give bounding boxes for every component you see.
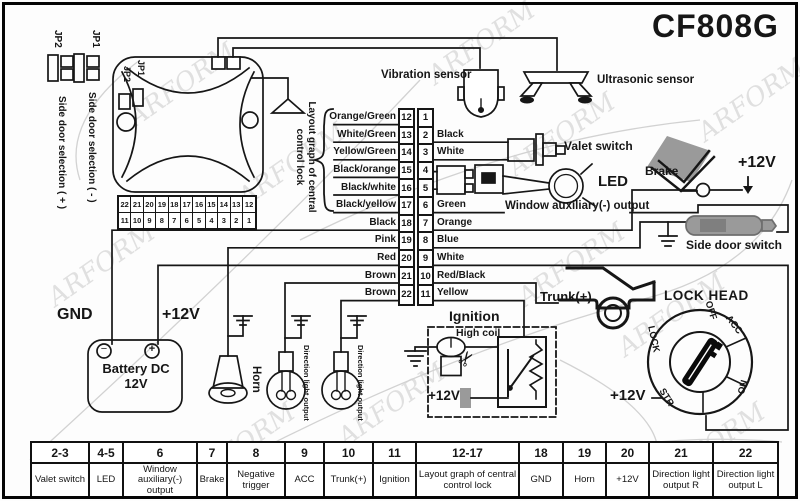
wire-label-left: Black/white — [341, 183, 396, 194]
wiring-diagram-page: ARFORMARFORMARFORMARFORMARFORMARFORMARFO… — [0, 0, 800, 501]
table-pin-label: Horn — [564, 464, 605, 497]
table-pin-label: GND — [520, 464, 562, 497]
strip-pin-number: 21 — [131, 197, 143, 213]
table-column: 20+12V — [607, 443, 650, 497]
ultrasonic-sensor-label: Ultrasonic sensor — [597, 74, 694, 86]
table-pin-label: Negative trigger — [228, 464, 284, 497]
battery-name-line2: 12V — [92, 377, 180, 391]
jumper-jp1-text: Side door selection ( - ) — [86, 92, 97, 203]
jumper-jp2-label: JP2 — [52, 30, 63, 48]
direction-light-label-2: Direction light output — [356, 345, 364, 421]
wire-label-left: Brown — [365, 288, 396, 299]
table-column: 2-3Valet switch — [32, 443, 90, 497]
table-column: 21Direction light output R — [650, 443, 714, 497]
central-lock-bracket-label: Layout graph of central control lock — [293, 101, 317, 213]
connector-pin-right: 8 — [419, 233, 432, 251]
connector-pin-left: 18 — [400, 216, 413, 234]
table-column: 22Direction light output L — [714, 443, 777, 497]
wire-label-left: Orange/Green — [329, 112, 396, 123]
connector-pin-left: 17 — [400, 198, 413, 216]
connector-column-right: 1234567891011 — [417, 108, 434, 306]
strip-pin-number: 7 — [169, 213, 181, 229]
connector-pin-right: 4 — [419, 163, 432, 181]
strip-pin-number: 9 — [144, 213, 156, 229]
table-column: 6Window auxiliary(-) output — [124, 443, 198, 497]
direction-light-label-1: Direction light output — [302, 345, 310, 421]
ignition-12v-label: +12V — [428, 389, 460, 403]
strip-row-bottom: 1110987654321 — [119, 213, 255, 229]
table-pin-label: Trunk(+) — [325, 464, 372, 497]
connector-pin-right: 11 — [419, 286, 432, 304]
table-column: 11Ignition — [374, 443, 417, 497]
pin-function-table: 2-3Valet switch4-5LED6Window auxiliary(-… — [30, 441, 779, 499]
wire-label-left: Black/orange — [333, 165, 396, 176]
connector-pin-left: 20 — [400, 251, 413, 269]
connector-pin-left: 14 — [400, 145, 413, 163]
connector-pin-left: 13 — [400, 128, 413, 146]
connector-pin-right: 10 — [419, 268, 432, 286]
strip-pin-number: 10 — [131, 213, 143, 229]
trunk-label: Trunk(+) — [540, 290, 592, 304]
connector-pin-left: 12 — [400, 110, 413, 128]
table-column: 19Horn — [564, 443, 607, 497]
table-pin-label: Brake — [198, 464, 226, 497]
window-aux-label: Window auxiliary(-) output — [505, 200, 649, 212]
gnd-label: GND — [57, 307, 93, 324]
wire-label-right: Yellow — [437, 288, 468, 299]
table-column: 18GND — [520, 443, 564, 497]
table-column: 7Brake — [198, 443, 228, 497]
table-pin-number: 18 — [520, 443, 562, 464]
connector-column-left: 1213141516171819202122 — [398, 108, 415, 306]
strip-pin-number: 4 — [206, 213, 218, 229]
strip-pin-number: 19 — [156, 197, 168, 213]
connector-pin-right: 6 — [419, 198, 432, 216]
connector-pin-left: 22 — [400, 286, 413, 304]
table-column: 12-17Layout graph of central control loc… — [417, 443, 520, 497]
table-pin-label: Window auxiliary(-) output — [124, 464, 196, 497]
connector-pin-left: 15 — [400, 163, 413, 181]
battery-name-line1: Battery DC — [92, 362, 180, 376]
table-pin-label: Ignition — [374, 464, 415, 497]
valet-switch-label: Valet switch — [564, 140, 633, 153]
horn-label: Horn — [250, 366, 262, 393]
table-pin-number: 10 — [325, 443, 372, 464]
table-pin-label: +12V — [607, 464, 648, 497]
strip-pin-number: 17 — [181, 197, 193, 213]
unit-pin-strip: 2221201918171615141312 1110987654321 — [117, 195, 257, 230]
strip-pin-number: 8 — [156, 213, 168, 229]
strip-pin-number: 20 — [144, 197, 156, 213]
strip-row-top: 2221201918171615141312 — [119, 197, 255, 213]
table-pin-label: Layout graph of central control lock — [417, 464, 518, 497]
table-pin-number: 19 — [564, 443, 605, 464]
table-pin-number: 12-17 — [417, 443, 518, 464]
ignition-title: Ignition — [449, 309, 500, 324]
table-pin-label: Direction light output R — [650, 464, 712, 497]
table-pin-number: 20 — [607, 443, 648, 464]
strip-pin-number: 16 — [193, 197, 205, 213]
unit-jp1-label: JP1 — [136, 60, 145, 76]
strip-pin-number: 18 — [169, 197, 181, 213]
strip-pin-number: 1 — [243, 213, 255, 229]
wire-label-left: Black — [369, 218, 396, 229]
strip-pin-number: 2 — [231, 213, 243, 229]
table-pin-label: LED — [90, 464, 122, 497]
wire-label-right: Black — [437, 130, 464, 141]
connector-pin-right: 9 — [419, 251, 432, 269]
strip-pin-number: 11 — [119, 213, 131, 229]
connector-pin-right: 3 — [419, 145, 432, 163]
brake-12v-label: +12V — [738, 155, 776, 172]
battery-plus-terminal-icon: + — [146, 344, 158, 356]
table-pin-label: Valet switch — [32, 464, 88, 497]
strip-pin-number: 3 — [218, 213, 230, 229]
table-pin-number: 7 — [198, 443, 226, 464]
connector-pin-right: 2 — [419, 128, 432, 146]
wire-label-left: Yellow/Green — [333, 147, 396, 158]
strip-pin-number: 12 — [243, 197, 255, 213]
table-pin-number: 6 — [124, 443, 196, 464]
page-title: CF808G — [652, 10, 779, 44]
table-pin-number: 8 — [228, 443, 284, 464]
high-coil-label: High coil — [456, 328, 500, 339]
vibration-sensor-label: Vibration sensor — [381, 69, 472, 81]
wire-label-left: Brown — [365, 271, 396, 282]
battery-12v-label: +12V — [162, 307, 200, 324]
table-pin-label: Direction light output L — [714, 464, 777, 497]
connector-pin-left: 16 — [400, 180, 413, 198]
table-column: 9ACC — [286, 443, 325, 497]
connector-pin-right: 1 — [419, 110, 432, 128]
wire-label-left: Black/yellow — [336, 200, 396, 211]
table-pin-number: 4-5 — [90, 443, 122, 464]
wire-label-right: White — [437, 147, 464, 158]
connector-pin-right: 5 — [419, 180, 432, 198]
wire-label-right: Green — [437, 200, 466, 211]
table-column: 10Trunk(+) — [325, 443, 374, 497]
wire-label-right: Orange — [437, 218, 472, 229]
table-pin-number: 2-3 — [32, 443, 88, 464]
strip-pin-number: 22 — [119, 197, 131, 213]
wire-label-left: White/Green — [337, 130, 396, 141]
table-pin-number: 9 — [286, 443, 323, 464]
strip-pin-number: 6 — [181, 213, 193, 229]
table-column: 8Negative trigger — [228, 443, 286, 497]
wire-label-right: Red/Black — [437, 271, 485, 282]
strip-pin-number: 5 — [193, 213, 205, 229]
led-label: LED — [598, 174, 628, 190]
unit-jp2-label: JP2 — [122, 66, 131, 82]
strip-pin-number: 13 — [231, 197, 243, 213]
strip-pin-number: 14 — [218, 197, 230, 213]
table-pin-label: ACC — [286, 464, 323, 497]
wire-label-left: Pink — [375, 235, 396, 246]
brake-label: Brake — [645, 165, 678, 178]
wire-label-right: Blue — [437, 235, 459, 246]
connector-pin-left: 19 — [400, 233, 413, 251]
wire-label-left: Red — [377, 253, 396, 264]
side-door-switch-label: Side door switch — [686, 239, 782, 252]
lock-head-12v-label: +12V — [610, 388, 645, 404]
table-column: 4-5LED — [90, 443, 124, 497]
jumper-jp2-text: Side door selection ( + ) — [56, 96, 67, 209]
table-pin-number: 21 — [650, 443, 712, 464]
connector-pin-right: 7 — [419, 216, 432, 234]
strip-pin-number: 15 — [206, 197, 218, 213]
jumper-jp1-label: JP1 — [90, 30, 101, 48]
battery-minus-terminal-icon: − — [98, 344, 110, 356]
table-pin-number: 11 — [374, 443, 415, 464]
connector-pin-left: 21 — [400, 268, 413, 286]
wire-label-right: White — [437, 253, 464, 264]
table-pin-number: 22 — [714, 443, 777, 464]
